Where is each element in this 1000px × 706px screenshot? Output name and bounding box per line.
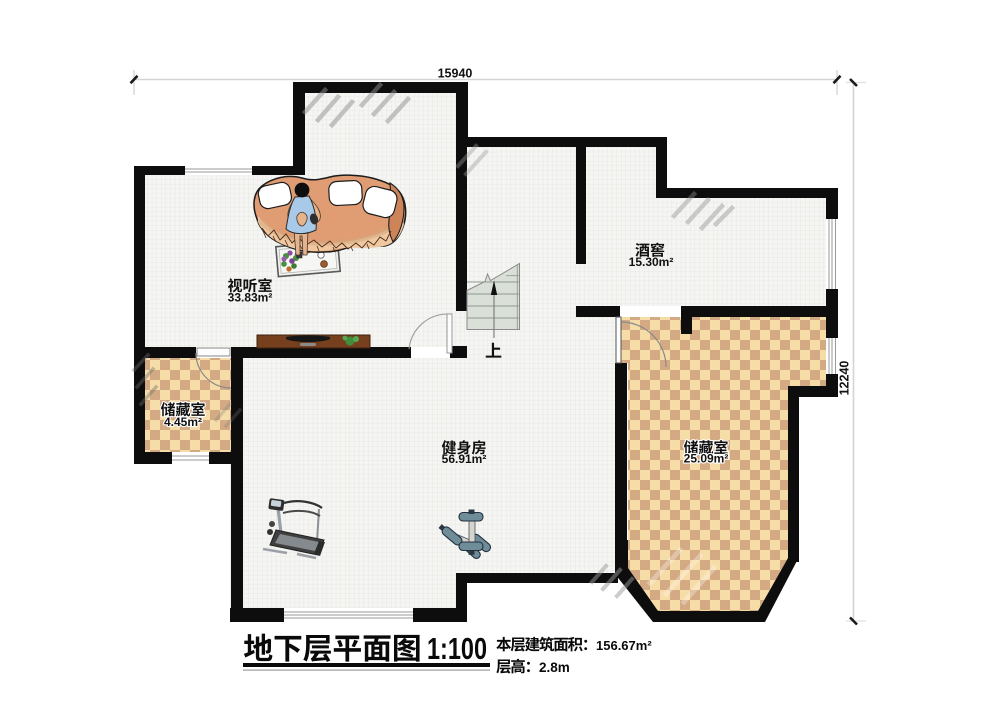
svg-text:15.30m²: 15.30m²	[629, 255, 674, 269]
svg-text:15940: 15940	[438, 67, 473, 81]
svg-text:25.09m²: 25.09m²	[684, 452, 729, 466]
svg-text:12240: 12240	[838, 361, 852, 396]
svg-text:156.67m²: 156.67m²	[596, 638, 652, 653]
svg-text:56.91m²: 56.91m²	[442, 452, 487, 466]
svg-text:4.45m²: 4.45m²	[164, 415, 202, 429]
svg-text:2.8m: 2.8m	[539, 660, 570, 675]
svg-text:1:100: 1:100	[427, 631, 487, 666]
svg-text:33.83m²: 33.83m²	[228, 291, 273, 305]
